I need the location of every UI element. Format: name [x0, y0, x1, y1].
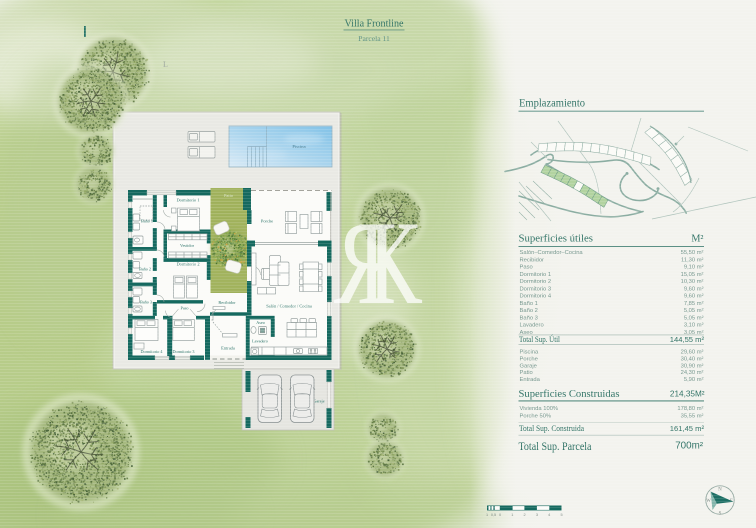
svg-text:2: 2 [524, 513, 526, 517]
svg-text:Vestidor: Vestidor [180, 243, 195, 248]
svg-text:Emplazamiento: Emplazamiento [519, 98, 585, 110]
svg-text:Salón / Comedor / Cocina: Salón / Comedor / Cocina [266, 304, 312, 309]
svg-text:Lavadero: Lavadero [520, 323, 544, 329]
svg-text:55,50 m²: 55,50 m² [681, 250, 704, 256]
svg-text:178,80 m²: 178,80 m² [677, 406, 703, 412]
svg-text:M²: M² [691, 233, 703, 244]
svg-text:1: 1 [486, 513, 488, 517]
svg-text:5,05 m²: 5,05 m² [684, 315, 704, 321]
svg-text:Total Sup. Parcela: Total Sup. Parcela [519, 439, 593, 453]
svg-text:N: N [718, 488, 722, 493]
svg-text:Porche 50%: Porche 50% [520, 413, 552, 419]
svg-text:Dormitorio 2: Dormitorio 2 [176, 262, 199, 267]
svg-text:Villa Frontline: Villa Frontline [345, 18, 404, 30]
svg-text:Baño 1: Baño 1 [520, 301, 538, 307]
svg-text:0,5: 0,5 [491, 513, 496, 517]
svg-text:24,30 m²: 24,30 m² [681, 370, 704, 376]
svg-text:L: L [163, 60, 168, 69]
svg-text:Piscina: Piscina [292, 144, 305, 149]
svg-text:Vivienda 100%: Vivienda 100% [520, 406, 559, 412]
svg-text:Entrada: Entrada [520, 377, 541, 383]
svg-text:10,30 m²: 10,30 m² [681, 279, 704, 285]
svg-text:Baño 2: Baño 2 [139, 267, 151, 272]
svg-text:Dormitorio 3: Dormitorio 3 [173, 349, 195, 354]
svg-text:35,55 m²: 35,55 m² [681, 413, 704, 419]
svg-text:Patio: Patio [520, 370, 533, 376]
svg-text:Piscina: Piscina [520, 350, 539, 356]
svg-text:0: 0 [499, 513, 501, 517]
svg-text:9,60 m²: 9,60 m² [684, 286, 704, 292]
svg-text:Dormitorio 2: Dormitorio 2 [520, 279, 552, 285]
svg-text:Aseo: Aseo [256, 320, 265, 325]
svg-text:144,55 m²: 144,55 m² [670, 335, 705, 344]
svg-text:Superficies Construidas: Superficies Construidas [519, 388, 620, 400]
svg-text:Dormitorio 3: Dormitorio 3 [520, 286, 552, 292]
svg-text:Baño 2: Baño 2 [520, 308, 538, 314]
svg-text:3: 3 [536, 513, 538, 517]
svg-text:29,60 m²: 29,60 m² [681, 350, 704, 356]
svg-text:Porche: Porche [520, 356, 538, 362]
svg-text:Porche: Porche [261, 219, 273, 224]
svg-text:30,90 m²: 30,90 m² [681, 363, 704, 369]
svg-text:Paso: Paso [181, 306, 189, 311]
svg-text:Garaje: Garaje [520, 363, 537, 369]
svg-text:Total Sup. Construida: Total Sup. Construida [519, 423, 584, 433]
svg-text:Lavadero: Lavadero [252, 339, 268, 344]
svg-text:Superficies útiles: Superficies útiles [519, 232, 594, 244]
svg-text:700m²: 700m² [675, 441, 704, 452]
svg-text:Garaje: Garaje [313, 399, 324, 404]
svg-text:Paso: Paso [520, 265, 533, 271]
svg-text:5: 5 [560, 513, 562, 517]
svg-text:5,05 m²: 5,05 m² [684, 308, 704, 314]
svg-text:3,10 m²: 3,10 m² [684, 323, 704, 329]
svg-text:Baño 3: Baño 3 [140, 300, 152, 305]
svg-text:Total Sup. Útil: Total Sup. Útil [519, 334, 560, 344]
svg-text:Baño 3: Baño 3 [520, 315, 538, 321]
svg-text:11,30 m²: 11,30 m² [681, 257, 704, 263]
svg-text:Recibidor: Recibidor [520, 257, 545, 263]
svg-text:Dormitorio 4: Dormitorio 4 [141, 349, 164, 354]
svg-text:7,85 m²: 7,85 m² [684, 301, 704, 307]
svg-text:Dormitorio 1: Dormitorio 1 [520, 272, 552, 278]
svg-text:Entrada: Entrada [221, 346, 235, 351]
svg-text:Dormitorio 1: Dormitorio 1 [176, 198, 199, 203]
svg-text:9,10 m²: 9,10 m² [684, 265, 704, 271]
svg-text:Patio: Patio [224, 193, 234, 198]
svg-text:214,35M²: 214,35M² [670, 389, 705, 398]
svg-text:15,05 m²: 15,05 m² [681, 272, 704, 278]
svg-text:Dormitorio 4: Dormitorio 4 [520, 294, 552, 300]
svg-text:Parcela 11: Parcela 11 [358, 34, 390, 43]
svg-text:Recibidor: Recibidor [218, 300, 236, 305]
svg-text:K: K [357, 196, 423, 329]
svg-text:S: S [719, 512, 722, 517]
svg-text:30,40 m²: 30,40 m² [681, 356, 704, 362]
svg-text:161,45 m²: 161,45 m² [670, 424, 705, 433]
svg-text:Baño 1: Baño 1 [141, 219, 153, 224]
svg-text:1: 1 [511, 513, 513, 517]
svg-text:Salón–Comedor–Cocina: Salón–Comedor–Cocina [520, 250, 584, 256]
svg-text:9,60 m²: 9,60 m² [684, 294, 704, 300]
svg-text:5,90 m²: 5,90 m² [684, 377, 704, 383]
svg-text:4: 4 [548, 513, 550, 517]
svg-text:W: W [706, 499, 711, 504]
